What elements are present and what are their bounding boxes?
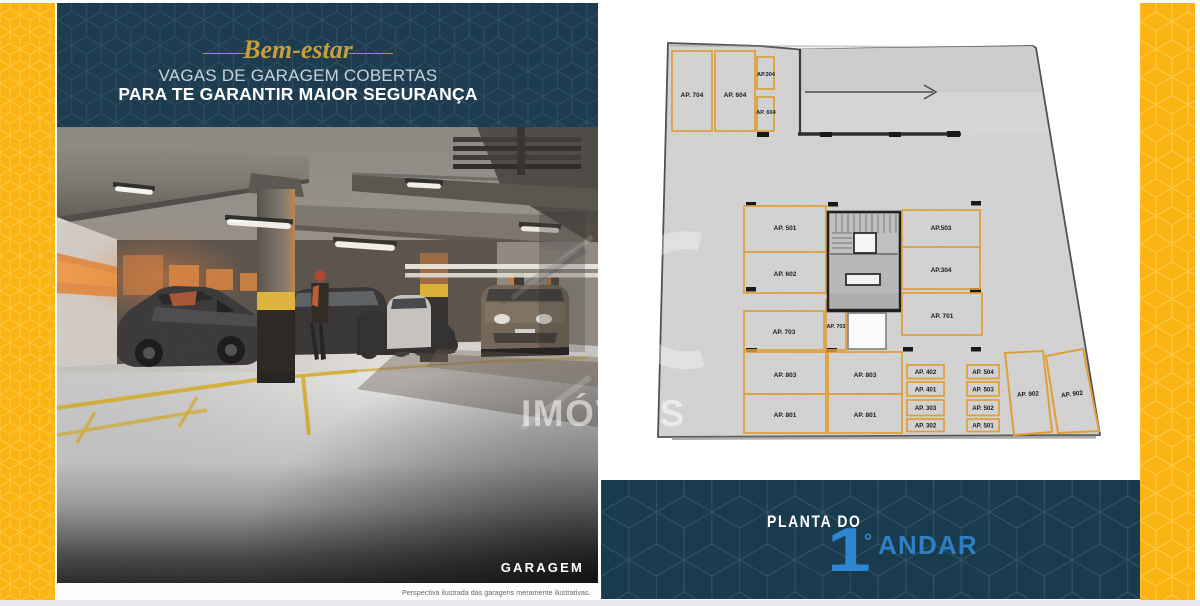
svg-text:AP. 803: AP. 803 — [854, 372, 877, 379]
svg-text:AP. 504: AP. 504 — [972, 369, 994, 376]
svg-text:AP. 604: AP. 604 — [724, 92, 747, 99]
svg-text:AP. 602: AP. 602 — [774, 271, 797, 278]
svg-text:AP.304: AP.304 — [757, 72, 776, 78]
svg-text:AP. 302: AP. 302 — [915, 423, 937, 430]
svg-text:AP. 502: AP. 502 — [972, 405, 994, 412]
svg-text:AP. 501: AP. 501 — [972, 423, 994, 430]
svg-text:AP.304: AP.304 — [931, 267, 952, 274]
svg-text:AP. 501: AP. 501 — [774, 225, 797, 232]
svg-text:AP. 703: AP. 703 — [827, 324, 846, 330]
svg-text:AP. 704: AP. 704 — [681, 92, 704, 99]
svg-text:AP. 801: AP. 801 — [774, 412, 797, 419]
svg-text:AP. 402: AP. 402 — [915, 369, 937, 376]
svg-text:AP. 701: AP. 701 — [931, 313, 954, 320]
svg-text:AP. 604: AP. 604 — [756, 110, 776, 116]
svg-text:AP.503: AP.503 — [931, 225, 952, 232]
svg-text:AP. 801: AP. 801 — [854, 412, 877, 419]
svg-text:AP. 401: AP. 401 — [915, 387, 937, 394]
svg-text:AP. 902: AP. 902 — [1017, 390, 1040, 398]
svg-text:AP. 303: AP. 303 — [915, 405, 937, 412]
svg-text:AP. 703: AP. 703 — [773, 329, 796, 336]
svg-text:AP. 503: AP. 503 — [972, 387, 994, 394]
svg-text:AP. 803: AP. 803 — [774, 372, 797, 379]
